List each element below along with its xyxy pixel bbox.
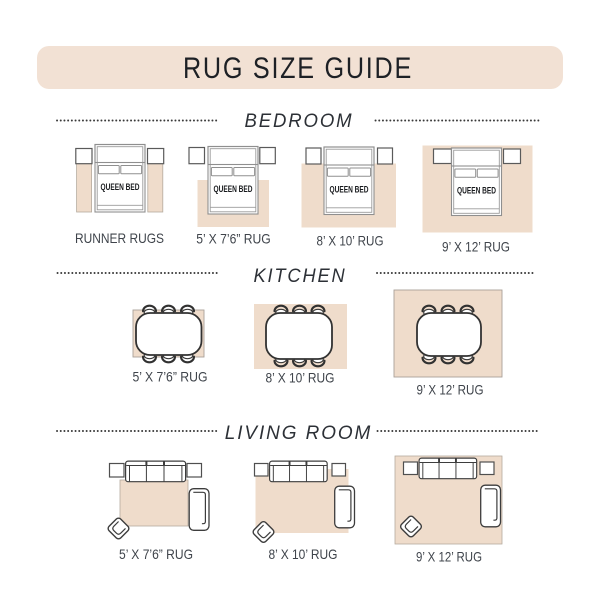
svg-text:9’ X 12’ RUG: 9’ X 12’ RUG — [442, 240, 510, 255]
svg-text:5’ X 7’6” RUG: 5’ X 7’6” RUG — [119, 547, 193, 562]
svg-text:8’ X 10’ RUG: 8’ X 10’ RUG — [269, 547, 338, 562]
svg-text:9’ X 12’ RUG: 9’ X 12’ RUG — [417, 383, 484, 398]
svg-text:8’ X 10’ RUG: 8’ X 10’ RUG — [266, 371, 335, 386]
svg-text:KITCHEN: KITCHEN — [254, 265, 347, 287]
svg-text:LIVING ROOM: LIVING ROOM — [225, 422, 373, 444]
svg-text:8’ X 10’ RUG: 8’ X 10’ RUG — [317, 234, 384, 249]
svg-text:5’ X 7’6” RUG: 5’ X 7’6” RUG — [133, 369, 208, 384]
svg-text:RUNNER RUGS: RUNNER RUGS — [75, 231, 164, 246]
svg-text:5’ X 7’6” RUG: 5’ X 7’6” RUG — [196, 232, 271, 247]
svg-text:RUG SIZE GUIDE: RUG SIZE GUIDE — [183, 53, 413, 85]
svg-text:BEDROOM: BEDROOM — [245, 110, 354, 132]
svg-text:9’ X 12’ RUG: 9’ X 12’ RUG — [416, 550, 482, 565]
